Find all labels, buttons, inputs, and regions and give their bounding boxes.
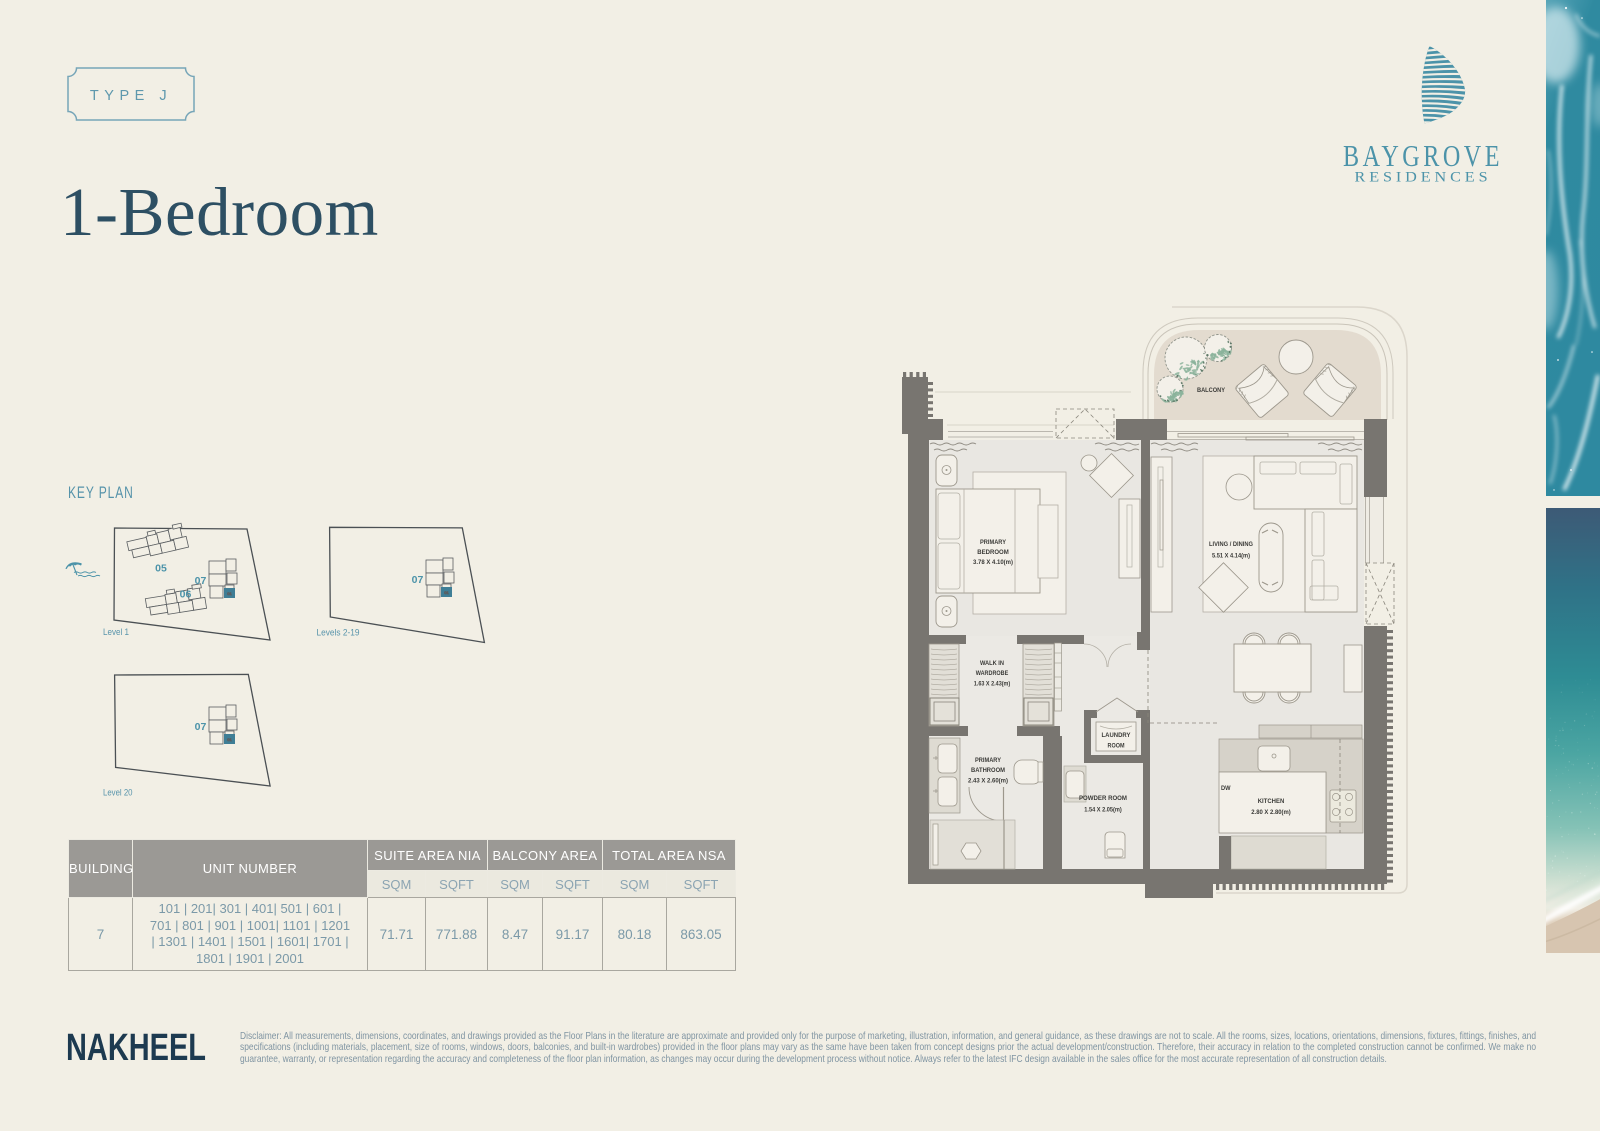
svg-text:1.54 X 2.05(m): 1.54 X 2.05(m)	[1084, 807, 1122, 814]
svg-text:05: 05	[155, 563, 167, 575]
svg-text:RESIDENCES: RESIDENCES	[1355, 170, 1492, 186]
svg-text:TYPE J: TYPE J	[90, 88, 172, 104]
svg-text:POWDER ROOM: POWDER ROOM	[1079, 795, 1127, 802]
svg-text:BEDROOM: BEDROOM	[977, 549, 1009, 556]
svg-text:07: 07	[195, 721, 207, 733]
svg-text:Level 20: Level 20	[103, 788, 133, 799]
svg-text:06: 06	[180, 589, 192, 601]
svg-text:LAUNDRY: LAUNDRY	[1102, 732, 1132, 739]
svg-text:BAYGROVE: BAYGROVE	[1343, 138, 1503, 173]
svg-text:2.80 X 2.80(m): 2.80 X 2.80(m)	[1251, 809, 1291, 816]
svg-text:BALCONY: BALCONY	[1197, 387, 1226, 394]
svg-text:NAKHEEL: NAKHEEL	[66, 1027, 206, 1066]
svg-text:2.43 X 2.60(m): 2.43 X 2.60(m)	[968, 778, 1008, 785]
svg-text:BATHROOM: BATHROOM	[971, 767, 1005, 774]
svg-text:WARDROBE: WARDROBE	[976, 670, 1009, 677]
svg-text:01: 01	[444, 590, 449, 595]
svg-text:1.63 X 2.43(m): 1.63 X 2.43(m)	[974, 681, 1011, 688]
svg-text:KITCHEN: KITCHEN	[1258, 798, 1285, 805]
svg-text:07: 07	[412, 574, 424, 586]
svg-text:3.78 X 4.10(m): 3.78 X 4.10(m)	[973, 559, 1013, 566]
svg-text:Level 1: Level 1	[103, 627, 129, 638]
svg-text:ROOM: ROOM	[1108, 743, 1125, 750]
svg-text:07: 07	[195, 575, 207, 587]
svg-text:PRIMARY: PRIMARY	[980, 539, 1007, 546]
svg-text:5.51 X 4.14(m): 5.51 X 4.14(m)	[1212, 553, 1250, 560]
svg-text:01: 01	[227, 591, 232, 596]
svg-text:DW: DW	[1221, 786, 1231, 792]
svg-text:Levels 2-19: Levels 2-19	[317, 628, 360, 639]
svg-text:01: 01	[227, 737, 232, 742]
svg-text:LIVING / DINING: LIVING / DINING	[1209, 541, 1253, 548]
svg-text:PRIMARY: PRIMARY	[975, 757, 1002, 764]
svg-text:WALK IN: WALK IN	[980, 660, 1004, 667]
